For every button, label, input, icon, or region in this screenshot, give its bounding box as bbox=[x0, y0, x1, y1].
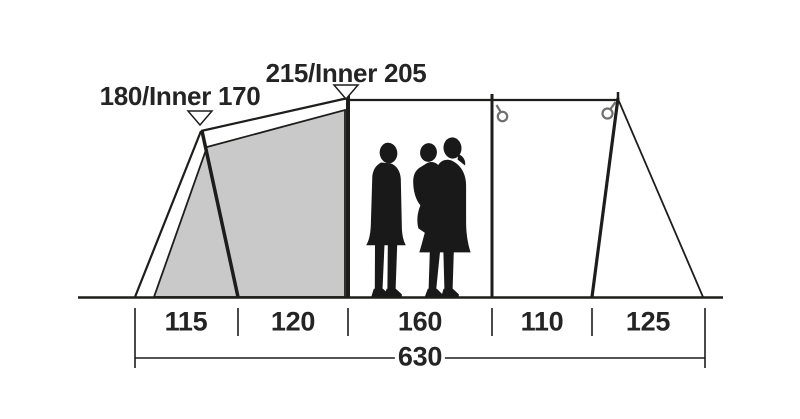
tent-dimension-diagram: 180/Inner 170 215/Inner 205 115 120 160 … bbox=[0, 0, 800, 419]
segment-dim-110: 110 bbox=[521, 309, 564, 336]
right-slant-pole bbox=[592, 98, 618, 297]
ring-hook-icon bbox=[603, 102, 616, 119]
ring-hook-icon bbox=[497, 105, 508, 121]
segment-dim-120: 120 bbox=[271, 309, 315, 336]
guy-line bbox=[618, 99, 703, 297]
height-label-left: 180/Inner 170 bbox=[100, 83, 261, 109]
height-label-center: 215/Inner 205 bbox=[266, 60, 427, 86]
segment-dim-115: 115 bbox=[165, 309, 208, 336]
segment-dim-160: 160 bbox=[398, 309, 442, 336]
height-marker-triangle-icon bbox=[188, 111, 212, 125]
total-dim-630: 630 bbox=[395, 344, 445, 371]
inner-tent-area bbox=[154, 110, 345, 297]
segment-dim-125: 125 bbox=[626, 309, 670, 336]
family-silhouette bbox=[366, 137, 470, 297]
